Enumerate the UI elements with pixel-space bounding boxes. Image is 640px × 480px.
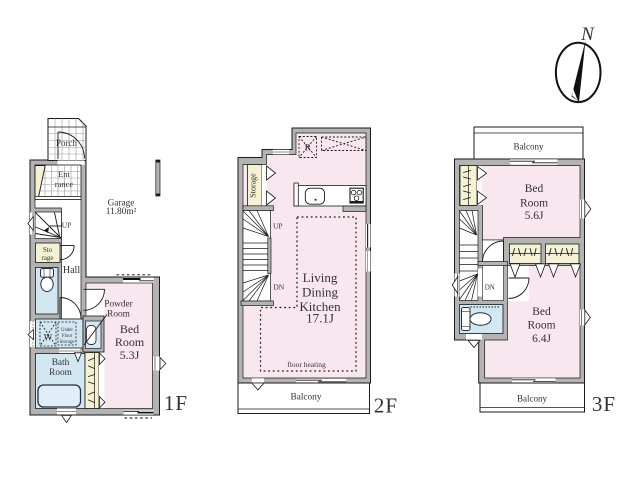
svg-text:Balcony: Balcony — [291, 393, 322, 403]
svg-text:Storage: Storage — [249, 173, 258, 198]
svg-text:Sto: Sto — [43, 247, 53, 254]
svg-text:rage: rage — [42, 255, 54, 262]
svg-text:Balcony: Balcony — [514, 142, 544, 152]
svg-text:Bath: Bath — [52, 358, 70, 368]
svg-text:Room: Room — [527, 320, 555, 332]
svg-text:Bed: Bed — [120, 322, 139, 336]
svg-text:UP: UP — [273, 222, 283, 231]
svg-text:6.4J: 6.4J — [532, 333, 551, 345]
svg-text:5.6J: 5.6J — [525, 210, 544, 222]
svg-text:Room: Room — [115, 335, 145, 349]
svg-text:Hall: Hall — [63, 265, 80, 276]
svg-text:3F: 3F — [592, 392, 616, 416]
svg-text:Bed: Bed — [532, 306, 551, 318]
svg-text:R: R — [305, 144, 312, 154]
svg-text:Floor: Floor — [62, 334, 73, 339]
svg-text:rance: rance — [55, 179, 74, 189]
svg-text:17.1J: 17.1J — [306, 311, 334, 326]
svg-text:Storage: Storage — [60, 340, 75, 345]
svg-text:Balcony: Balcony — [517, 394, 547, 404]
svg-text:Room: Room — [49, 368, 72, 378]
svg-text:Living: Living — [303, 270, 338, 285]
svg-text:Room: Room — [107, 310, 130, 320]
svg-text:5.3J: 5.3J — [120, 348, 140, 362]
svg-text:UP: UP — [62, 221, 72, 230]
svg-text:11.80m²: 11.80m² — [106, 207, 137, 217]
svg-text:2F: 2F — [374, 394, 398, 418]
svg-text:1F: 1F — [164, 391, 188, 415]
svg-text:W: W — [44, 333, 53, 343]
svg-text:DN: DN — [485, 284, 495, 292]
svg-text:Room: Room — [520, 198, 548, 210]
svg-text:Porch: Porch — [56, 138, 77, 148]
svg-text:DN: DN — [273, 283, 284, 292]
svg-text:floor heating: floor heating — [287, 360, 326, 369]
svg-text:Dining: Dining — [302, 285, 339, 300]
svg-text:Under: Under — [61, 328, 73, 333]
svg-text:Bed: Bed — [525, 183, 544, 195]
svg-text:N: N — [580, 24, 595, 45]
svg-text:Ent: Ent — [58, 169, 70, 179]
svg-text:Powder: Powder — [104, 300, 133, 310]
